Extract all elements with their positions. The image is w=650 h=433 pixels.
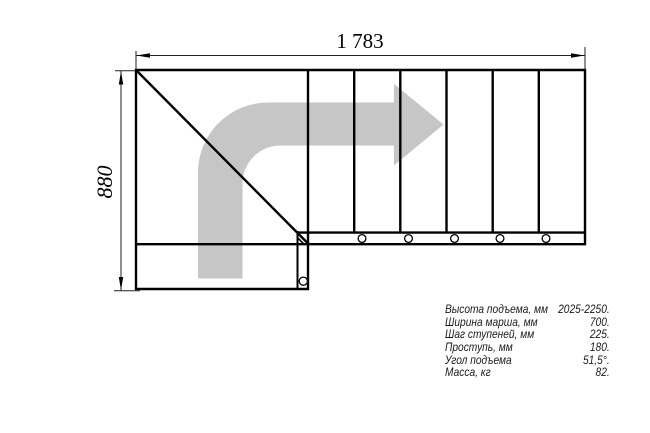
svg-text:880: 880 bbox=[92, 166, 117, 199]
svg-text:1 783: 1 783 bbox=[336, 29, 383, 53]
